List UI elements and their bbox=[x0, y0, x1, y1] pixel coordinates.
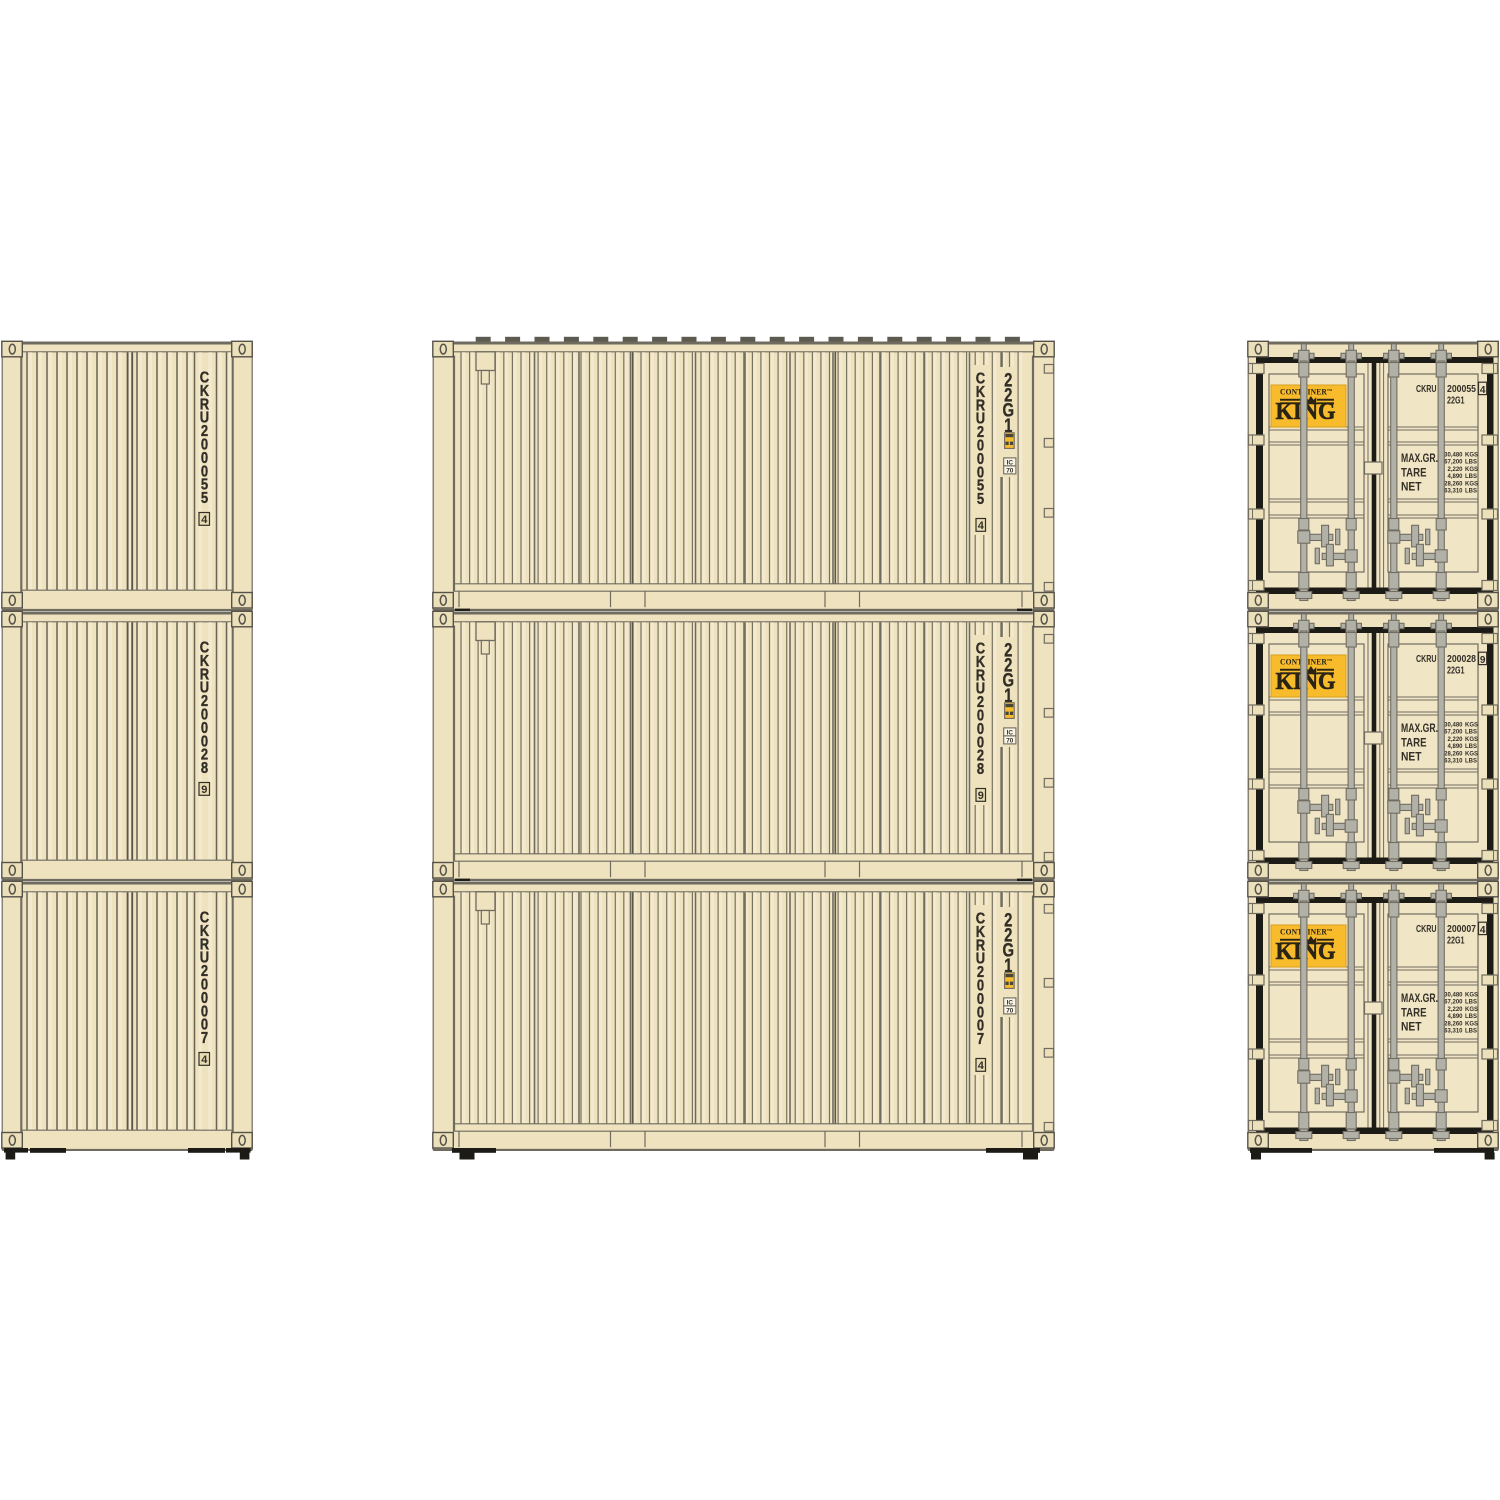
svg-text:4: 4 bbox=[978, 520, 985, 532]
svg-text:22G1: 22G1 bbox=[1447, 934, 1465, 946]
svg-text:4: 4 bbox=[201, 514, 208, 526]
svg-text:200007: 200007 bbox=[1447, 923, 1476, 935]
svg-text:200028: 200028 bbox=[1447, 653, 1476, 665]
svg-text:22G1: 22G1 bbox=[1447, 664, 1465, 676]
svg-text:4: 4 bbox=[978, 1060, 985, 1072]
svg-text:22G1: 22G1 bbox=[1447, 394, 1465, 406]
svg-text:9: 9 bbox=[201, 784, 207, 796]
svg-text:4: 4 bbox=[1480, 385, 1486, 396]
svg-text:CKRU: CKRU bbox=[1416, 653, 1437, 665]
svg-text:4: 4 bbox=[1480, 925, 1486, 936]
svg-text:CKRU: CKRU bbox=[1416, 923, 1437, 935]
svg-text:CKRU: CKRU bbox=[1416, 383, 1437, 395]
svg-text:9: 9 bbox=[978, 790, 984, 802]
svg-text:9: 9 bbox=[1480, 655, 1486, 666]
svg-text:4: 4 bbox=[201, 1054, 208, 1066]
svg-text:200055: 200055 bbox=[1447, 383, 1476, 395]
